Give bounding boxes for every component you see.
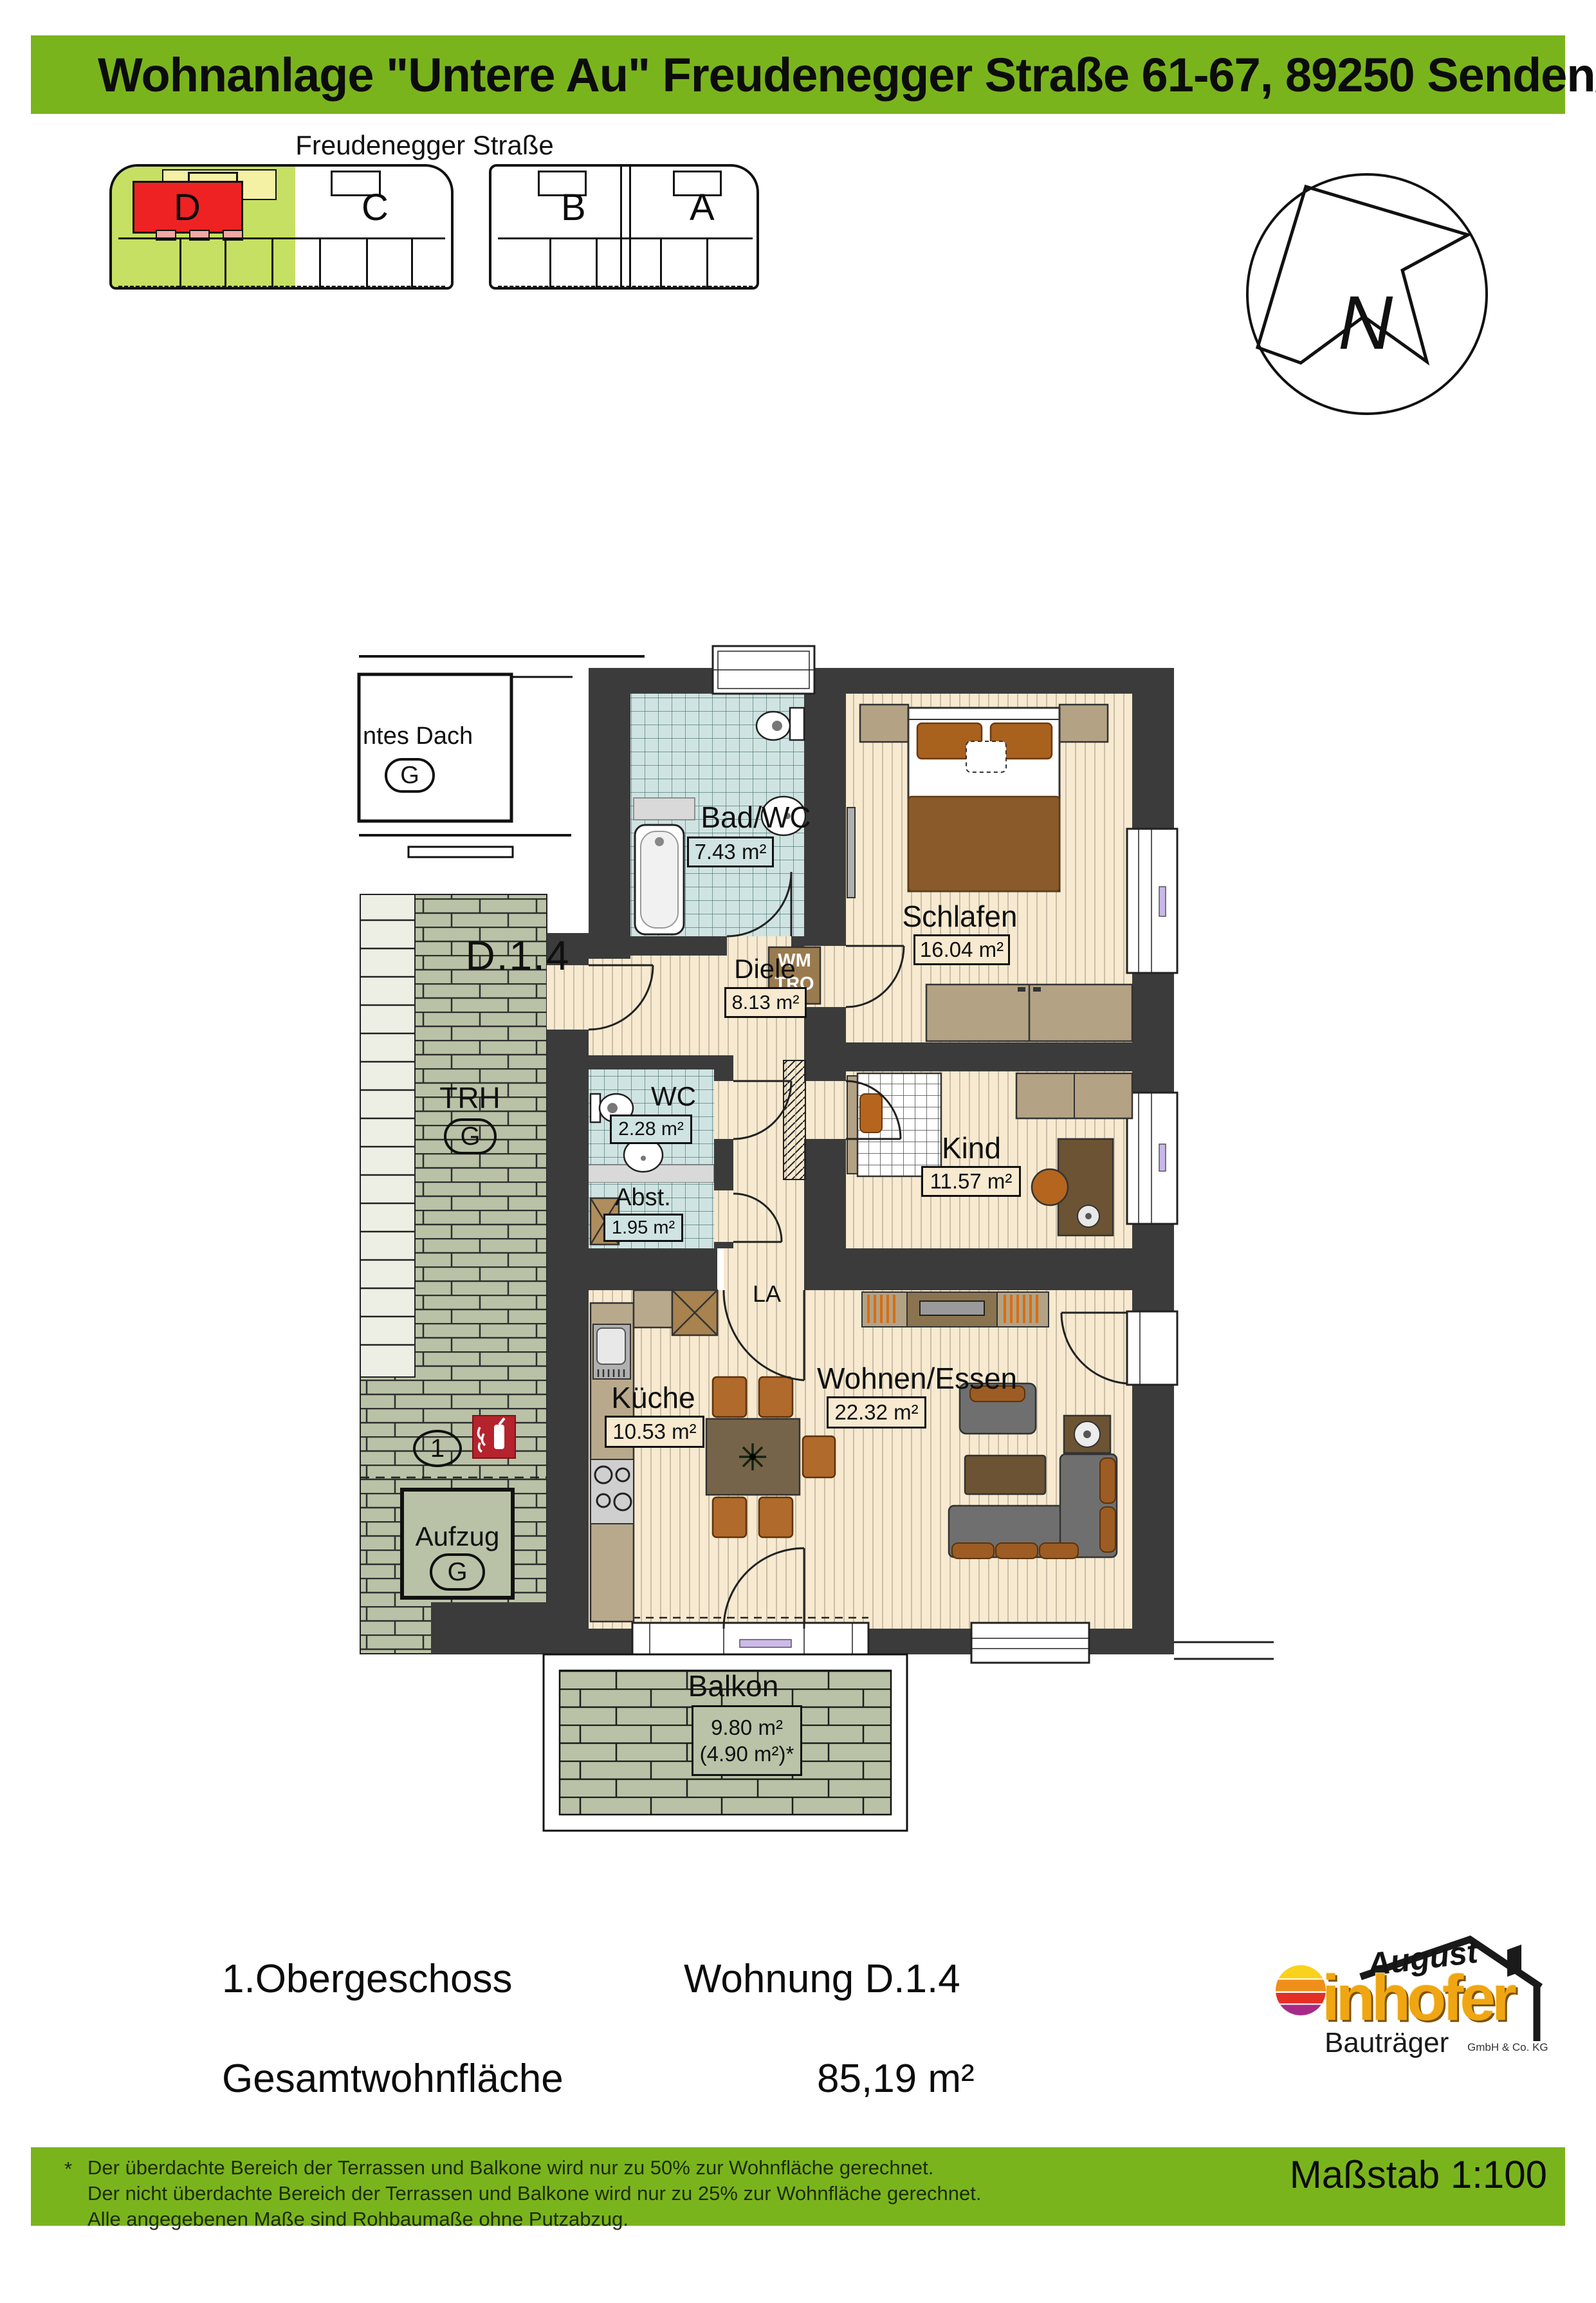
balkon-area-2: (4.90 m²)* <box>700 1741 794 1767</box>
room-area-bad: 7.43 m² <box>687 837 774 867</box>
footnote-line-2: Der nicht überdachte Bereich der Terrass… <box>87 2181 981 2206</box>
header-bar: Wohnanlage "Untere Au" Freudenegger Stra… <box>31 35 1565 114</box>
balkon-area-1: 9.80 m² <box>711 1714 783 1741</box>
footnote-block: * Der überdachte Bereich der Terrassen u… <box>87 2155 981 2232</box>
room-label-diele: Diele <box>723 955 807 983</box>
north-arrow-icon: N <box>1242 169 1492 420</box>
room-area-abst: 1.95 m² <box>603 1214 683 1242</box>
room-label-balkon: Balkon <box>669 1670 798 1701</box>
room-area-kueche: 10.53 m² <box>605 1416 704 1448</box>
logo-bautraeger: Bauträger <box>1325 2027 1449 2059</box>
footnote-line-1: Der überdachte Bereich der Terrassen und… <box>87 2155 981 2181</box>
building-label-a: A <box>690 186 715 229</box>
building-label-b: B <box>561 186 586 229</box>
building-label-d: D <box>174 186 201 229</box>
room-area-schlafen: 16.04 m² <box>913 934 1010 965</box>
scale-label: Maßstab 1:100 <box>1290 2152 1547 2197</box>
position-marker: 1 <box>413 1430 462 1467</box>
site-block-dc: D C <box>109 164 454 290</box>
logo-inhofer: inhofer <box>1322 1961 1513 2035</box>
site-block-ba: B A <box>489 164 759 290</box>
room-label-abst: Abst. <box>600 1185 686 1211</box>
balcony-row <box>118 237 445 288</box>
stairwell-tag: G <box>444 1118 497 1154</box>
floor-label: 1.Obergeschoss <box>222 1956 512 2002</box>
total-area-value: 85,19 m² <box>817 2056 975 2102</box>
room-area-kind: 11.57 m² <box>921 1166 1021 1197</box>
roof-label: ntes Dach <box>363 724 501 750</box>
building-label-c: C <box>362 186 389 229</box>
total-area-label: Gesamtwohnfläche <box>222 2056 564 2102</box>
room-area-balkon: 9.80 m² (4.90 m²)* <box>692 1705 802 1776</box>
street-label: Freudenegger Straße <box>286 130 563 161</box>
plan-labels: D.1.4 ntes Dach G TRH G 1 Aufzug G WM TR… <box>347 643 1274 1866</box>
elevator-label: Aufzug <box>404 1522 511 1551</box>
logo-sun-icon <box>1276 1965 1326 2015</box>
company-logo: August inhofer Bauträger GmbH & Co. KG <box>1270 1930 1554 2066</box>
document-title: Wohnanlage "Untere Au" Freudenegger Stra… <box>31 48 1596 102</box>
stairwell-label: TRH <box>430 1082 510 1113</box>
north-letter: N <box>1338 281 1393 365</box>
room-label-wc: WC <box>638 1082 709 1111</box>
vent-label: LA <box>741 1282 793 1306</box>
footnote-asterisk: * <box>64 2156 72 2182</box>
roof-tag: G <box>385 758 435 793</box>
site-plan: Freudenegger Straße D C <box>109 129 759 296</box>
logo-gmbh: GmbH & Co. KG <box>1467 2041 1548 2054</box>
footer-bar: * Der überdachte Bereich der Terrassen u… <box>31 2147 1565 2226</box>
floorplan-document: Wohnanlage "Untere Au" Freudenegger Stra… <box>0 0 1596 2303</box>
room-label-kind: Kind <box>920 1133 1023 1163</box>
unit-label: D.1.4 <box>444 934 592 977</box>
room-label-bad: Bad/WC <box>675 802 836 833</box>
room-area-diele: 8.13 m² <box>724 987 807 1018</box>
apartment-label: Wohnung D.1.4 <box>684 1956 960 2002</box>
elevator-tag: G <box>430 1553 485 1591</box>
room-label-schlafen: Schlafen <box>883 901 1037 932</box>
room-label-kueche: Küche <box>597 1382 710 1413</box>
balcony-row <box>498 237 753 288</box>
room-area-wc: 2.28 m² <box>610 1115 692 1144</box>
room-area-wohnen: 22.32 m² <box>827 1396 926 1429</box>
footnote-line-3: Alle angegebenen Maße sind Rohbaumaße oh… <box>87 2206 981 2232</box>
room-label-wohnen: Wohnen/Essen <box>817 1363 997 1394</box>
